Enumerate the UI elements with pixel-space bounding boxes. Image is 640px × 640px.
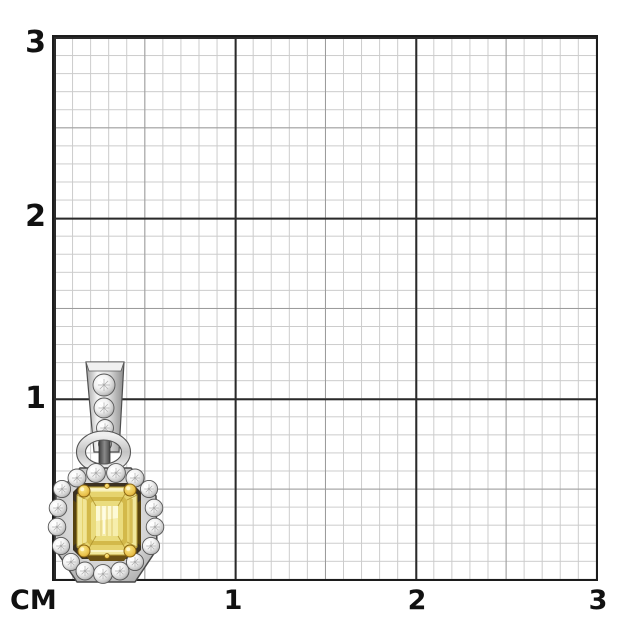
- ruler-bottom-label-3: 3: [576, 586, 620, 616]
- ruler-left-label-3: 3: [4, 28, 46, 58]
- photo-canvas: 3 2 1 СМ 1 2 3: [0, 0, 640, 640]
- measurement-grid: [52, 35, 598, 581]
- ruler-left-label-1: 1: [4, 384, 46, 414]
- ruler-bottom-label-1: 1: [211, 586, 255, 616]
- ruler-left-label-2: 2: [4, 202, 46, 232]
- ruler-unit-label: СМ: [10, 586, 54, 616]
- ruler-bottom-label-2: 2: [395, 586, 439, 616]
